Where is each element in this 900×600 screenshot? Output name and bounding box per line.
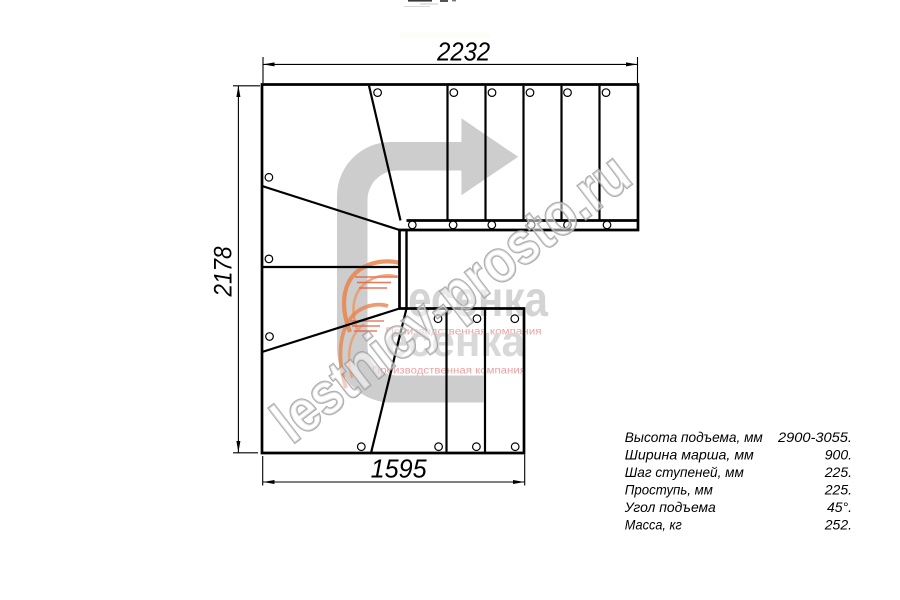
svg-text:225.: 225. bbox=[824, 482, 852, 498]
svg-text:Угол подъема: Угол подъема bbox=[624, 499, 716, 515]
svg-text:Масса, кг: Масса, кг bbox=[625, 517, 682, 533]
svg-text:1595: 1595 bbox=[371, 454, 428, 484]
svg-text:2178: 2178 bbox=[210, 246, 238, 297]
svg-text:Шаг ступеней, мм: Шаг ступеней, мм bbox=[625, 464, 744, 480]
svg-text:Ширина марша, мм: Ширина марша, мм bbox=[625, 447, 754, 463]
svg-text:225.: 225. bbox=[824, 464, 852, 480]
svg-text:2900-3055.: 2900-3055. bbox=[777, 429, 852, 445]
svg-text:252.: 252. bbox=[824, 517, 852, 533]
svg-text:900.: 900. bbox=[825, 447, 852, 463]
svg-text:2232: 2232 bbox=[436, 37, 490, 67]
svg-text:Высота подъема, мм: Высота подъема, мм bbox=[625, 429, 763, 445]
svg-text:45°.: 45°. bbox=[827, 499, 852, 515]
svg-text:Проступь, мм: Проступь, мм bbox=[625, 482, 713, 498]
